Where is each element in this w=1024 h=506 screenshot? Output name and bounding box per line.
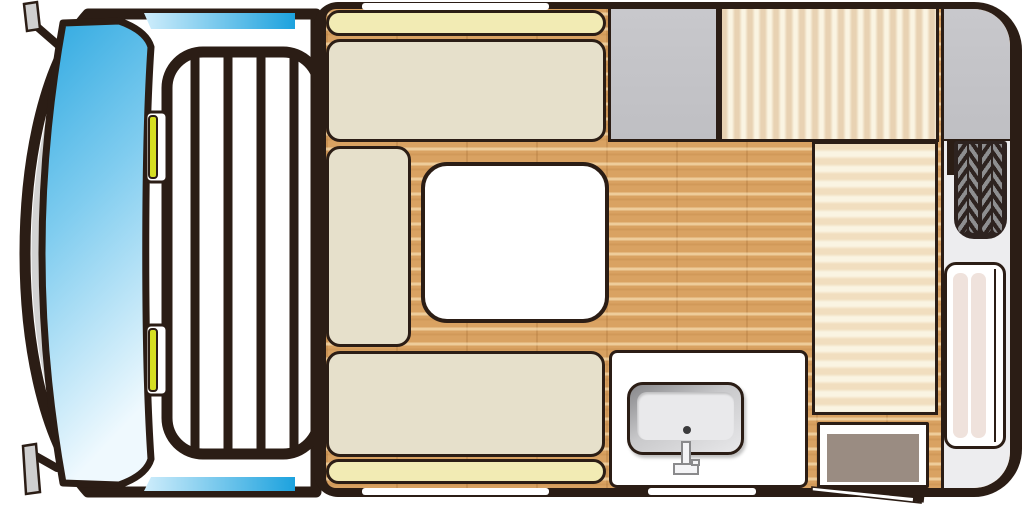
bench-bottom	[326, 351, 605, 457]
wall-window-top	[362, 3, 549, 10]
entry-step-mat	[827, 434, 919, 482]
camper-floorplan	[0, 0, 1024, 506]
wardrobe-gray-right	[941, 9, 1010, 142]
spare-tire	[954, 141, 1007, 239]
entry-step	[817, 422, 929, 488]
dinette-table	[421, 162, 609, 323]
side-window-bottom	[144, 477, 295, 491]
door-panel-line	[994, 269, 996, 442]
backrest-top	[326, 10, 606, 36]
cab-body	[25, 14, 316, 492]
mattress-horizontal	[812, 141, 938, 415]
backrest-bottom	[326, 459, 606, 484]
faucet-spout	[691, 459, 700, 466]
truck-cab	[0, 0, 335, 506]
wood-floor	[326, 9, 1010, 488]
wall-window-bottom-right	[648, 488, 756, 495]
kitchen-counter	[609, 350, 808, 488]
ladder-rack-frame	[167, 52, 319, 454]
tire-tread	[969, 144, 978, 233]
tire-tread	[993, 144, 1002, 233]
wardrobe-gray	[608, 9, 719, 142]
mattress-vertical	[719, 9, 939, 142]
sink-drain	[683, 426, 691, 434]
tire-tread	[958, 144, 967, 233]
tire-tread	[982, 144, 991, 233]
door-panel-strip	[953, 273, 968, 438]
hood-band	[36, 27, 90, 479]
windshield	[42, 21, 151, 485]
entry-door-panel	[944, 262, 1006, 449]
camper-shell	[314, 2, 1022, 497]
bench-top	[326, 39, 606, 142]
ladder-rack-bars	[195, 57, 294, 449]
marker-light-front	[146, 112, 167, 182]
wall-window-bottom-left	[362, 488, 549, 495]
side-mirror-top	[24, 2, 58, 45]
side-mirror-bottom	[23, 444, 57, 494]
seat-side	[326, 146, 411, 347]
door-panel-strip	[971, 273, 986, 438]
side-window-top	[144, 13, 295, 29]
marker-light-rear	[146, 325, 167, 395]
